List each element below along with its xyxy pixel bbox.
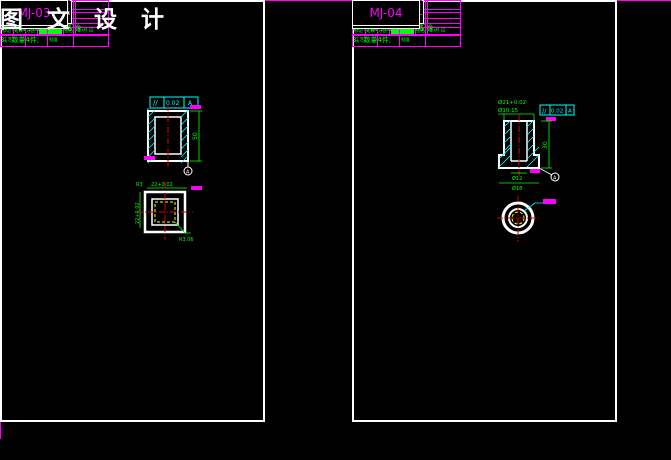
- sheet-frame: [0, 0, 265, 422]
- dim-height: 50: [192, 132, 199, 140]
- drawing-sheet-mj04: 其余 R6.3 Ø21+0.02 Ø10.15 // 0.02 A: [352, 0, 671, 460]
- plan-view: R3 22+0.02 22+0.02 R3.06: [135, 178, 210, 244]
- drawing-no-box: MJ-04: [352, 0, 420, 26]
- highlighted-dim: [546, 117, 556, 121]
- drawing-no: MJ-04: [369, 6, 402, 20]
- fcf-symbol: //: [542, 107, 547, 115]
- highlighted-dim: [190, 105, 201, 109]
- datum-letter: A: [186, 170, 190, 176]
- dim-top1: Ø21+0.02: [498, 99, 526, 106]
- dim-leader: R3.06: [179, 237, 194, 243]
- highlighted-dim: [543, 199, 556, 204]
- section-view: Ø21+0.02 Ø10.15 // 0.02 A 30 Ø12: [490, 93, 580, 193]
- plan-view: [497, 192, 567, 247]
- role-approve: 批准: [49, 37, 58, 43]
- role-approve: 批准: [401, 37, 410, 43]
- dim-bottom2: Ø18: [512, 185, 522, 192]
- fcf-symbol: //: [153, 99, 158, 107]
- dim-depth: 22+0.02: [135, 202, 141, 224]
- section-view: // 0.02 A 50 A: [138, 93, 218, 181]
- hatch-right: [181, 110, 188, 163]
- fcf-tolerance: 0.02: [551, 109, 563, 115]
- datum-letter: A: [553, 176, 557, 182]
- dim-height: 30: [542, 141, 549, 149]
- dim-top2: Ø10.15: [498, 107, 519, 114]
- drawing-sheet-mj03: 其余 R6.3 // 0.02 A 50 A: [0, 0, 336, 460]
- highlighted-dim: [530, 169, 540, 173]
- sheet-frame: [352, 0, 617, 422]
- hatch-left: [148, 110, 155, 163]
- role-process: 工艺: [3, 37, 12, 43]
- highlighted-dim: [144, 156, 155, 160]
- watermark-text: 图 文 设 计: [0, 0, 172, 34]
- cad-canvas: 其余 R6.3 // 0.02 A 50 A: [0, 0, 671, 460]
- dim-corner: R3: [136, 182, 143, 188]
- fcf-datum: A: [568, 109, 572, 115]
- dim-width: 22+0.02: [151, 182, 173, 188]
- highlighted-dim: [191, 186, 202, 190]
- role-process: 工艺: [355, 37, 364, 43]
- dim-bottom1: Ø12: [512, 175, 522, 182]
